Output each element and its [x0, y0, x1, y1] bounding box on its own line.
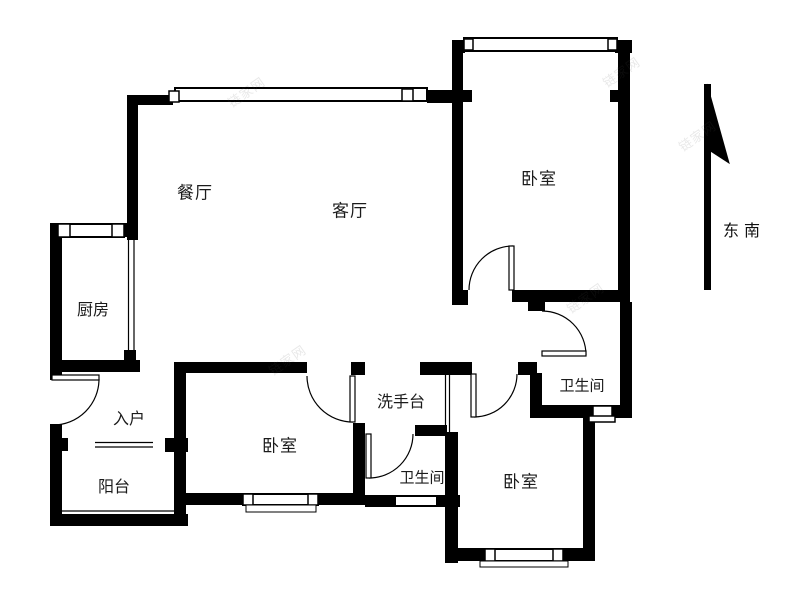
- wall: [365, 495, 395, 507]
- window-bathroom-right: [589, 406, 615, 422]
- compass-direction-label: 东南: [723, 217, 765, 241]
- wall: [415, 425, 447, 436]
- window-living-top: [169, 88, 427, 102]
- window-bedroom-top-right: [464, 38, 617, 51]
- walls: [50, 40, 632, 563]
- door-bedroom-top-right: [469, 246, 514, 290]
- wall: [620, 302, 632, 417]
- wall: [127, 95, 138, 240]
- wall: [50, 223, 62, 380]
- floorplan-canvas: 餐厅 客厅 卧室 厨房 入户 阳台 卧室 洗手台 卫生间 卫生间 卧室 东南 链…: [0, 0, 800, 600]
- wall: [512, 290, 630, 302]
- compass-arrow: [704, 84, 729, 290]
- wall: [583, 417, 595, 561]
- room-label-balcony: 阳台: [98, 473, 130, 497]
- window-bathroom-bottom: [395, 496, 437, 506]
- room-label-bathroom-right: 卫生间: [559, 375, 604, 396]
- wall: [351, 362, 365, 375]
- wall: [50, 514, 188, 526]
- room-label-kitchen: 厨房: [77, 296, 109, 320]
- room-label-entry: 入户: [113, 405, 145, 429]
- room-label-bathroom-bottom: 卫生间: [399, 467, 444, 488]
- wall: [427, 90, 463, 103]
- thin-partitions: [62, 240, 450, 511]
- room-label-bedroom-bottom-center: 卧室: [262, 432, 298, 457]
- wall: [610, 90, 618, 102]
- wall: [530, 405, 632, 418]
- door-bathroom-right: [542, 311, 586, 356]
- wall: [165, 438, 188, 452]
- room-label-bedroom-top-right: 卧室: [521, 165, 557, 190]
- compass-arrowhead-icon: [707, 84, 729, 163]
- wall: [463, 90, 472, 102]
- wall: [174, 493, 243, 505]
- window-kitchen: [58, 224, 124, 237]
- room-label-bedroom-bottom-right: 卧室: [503, 468, 539, 493]
- wall: [452, 40, 463, 305]
- wall: [445, 432, 458, 563]
- wall: [50, 360, 140, 372]
- wall: [618, 40, 630, 302]
- wall: [528, 302, 545, 311]
- window-bedroom-bottom-right: [480, 549, 568, 567]
- wall: [174, 362, 307, 373]
- door-bedroom-bottom-center: [307, 376, 355, 422]
- room-label-washstand: 洗手台: [377, 388, 425, 412]
- floorplan-drawing: [0, 0, 800, 600]
- wall: [353, 423, 365, 505]
- door-bedroom-bottom-right: [471, 374, 517, 417]
- wall: [50, 438, 68, 451]
- wall: [420, 362, 472, 375]
- wall: [124, 223, 138, 237]
- door-entry: [52, 375, 99, 425]
- wall: [452, 290, 468, 305]
- window-bedroom-bottom-center: [243, 494, 318, 512]
- room-label-dining: 餐厅: [177, 179, 213, 204]
- room-label-living: 客厅: [332, 197, 368, 222]
